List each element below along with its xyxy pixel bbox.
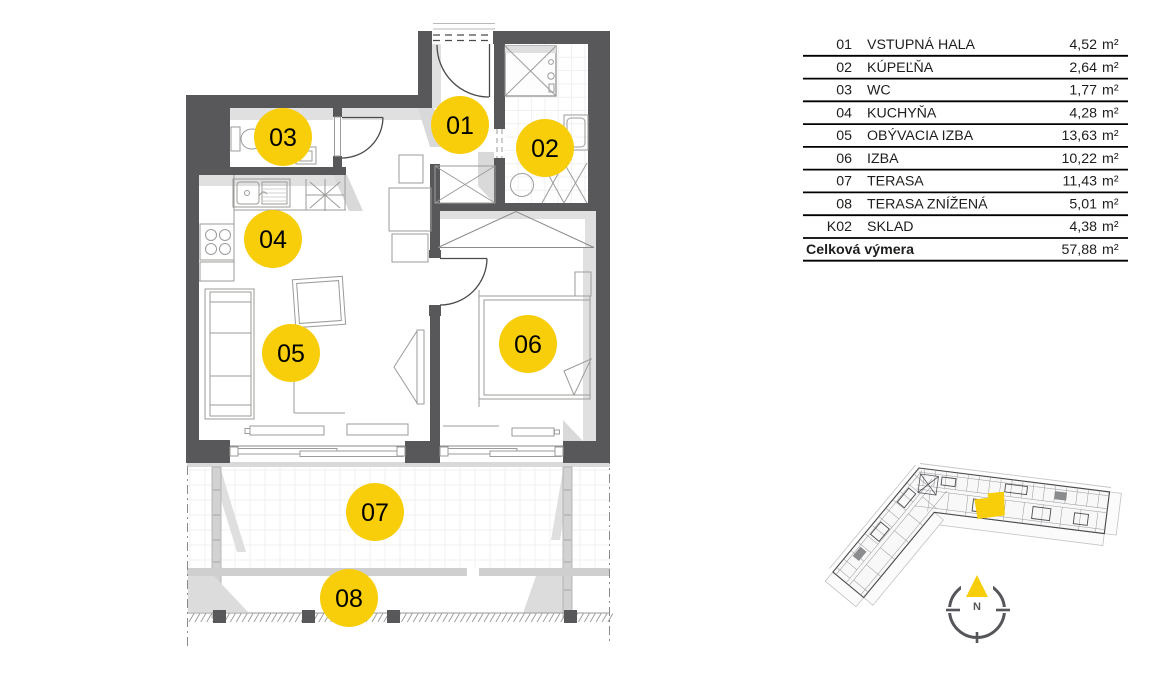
- svg-text:02: 02: [836, 60, 852, 76]
- svg-text:08: 08: [836, 196, 852, 212]
- svg-text:TERASA: TERASA: [867, 174, 924, 190]
- svg-text:03: 03: [836, 83, 852, 99]
- svg-text:m²: m²: [1102, 196, 1119, 212]
- svg-text:Celková výmera: Celková výmera: [806, 242, 914, 258]
- svg-text:OBÝVACIA IZBA: OBÝVACIA IZBA: [867, 127, 974, 144]
- svg-text:11,43: 11,43: [1063, 174, 1098, 190]
- svg-text:m²: m²: [1102, 174, 1119, 190]
- svg-text:4,28: 4,28: [1069, 105, 1097, 121]
- svg-text:02: 02: [531, 135, 559, 163]
- svg-text:1,77: 1,77: [1069, 83, 1097, 99]
- svg-text:4,38: 4,38: [1069, 219, 1097, 235]
- svg-text:01: 01: [836, 37, 852, 53]
- svg-text:m²: m²: [1102, 37, 1119, 53]
- svg-text:5,01: 5,01: [1069, 196, 1097, 212]
- svg-text:05: 05: [277, 340, 305, 368]
- svg-text:N: N: [973, 601, 981, 613]
- svg-text:TERASA ZNÍŽENÁ: TERASA ZNÍŽENÁ: [867, 195, 988, 212]
- svg-text:08: 08: [335, 585, 363, 613]
- svg-text:IZBA: IZBA: [867, 151, 899, 167]
- svg-text:m²: m²: [1102, 83, 1119, 99]
- svg-text:57,88: 57,88: [1061, 242, 1097, 258]
- svg-text:04: 04: [836, 105, 852, 121]
- svg-text:4,52: 4,52: [1069, 37, 1097, 53]
- svg-text:VSTUPNÁ HALA: VSTUPNÁ HALA: [867, 36, 976, 53]
- svg-text:m²: m²: [1102, 128, 1119, 144]
- svg-text:06: 06: [514, 331, 542, 359]
- svg-text:WC: WC: [867, 83, 891, 99]
- svg-text:03: 03: [269, 124, 297, 152]
- svg-text:KÚPEĽŇA: KÚPEĽŇA: [867, 59, 934, 76]
- svg-text:SKLAD: SKLAD: [867, 219, 914, 235]
- svg-text:13,63: 13,63: [1061, 128, 1097, 144]
- svg-text:06: 06: [836, 151, 852, 167]
- svg-text:m²: m²: [1102, 60, 1119, 76]
- svg-text:07: 07: [836, 174, 852, 190]
- svg-text:07: 07: [361, 499, 389, 527]
- svg-text:m²: m²: [1102, 105, 1119, 121]
- svg-text:K02: K02: [827, 219, 852, 235]
- svg-text:KUCHYŇA: KUCHYŇA: [867, 104, 937, 121]
- svg-text:m²: m²: [1102, 219, 1119, 235]
- svg-text:m²: m²: [1102, 151, 1119, 167]
- svg-text:2,64: 2,64: [1069, 60, 1097, 76]
- svg-text:05: 05: [836, 128, 852, 144]
- svg-text:01: 01: [446, 112, 474, 140]
- svg-text:04: 04: [259, 226, 287, 254]
- svg-text:m²: m²: [1102, 242, 1119, 258]
- svg-text:10,22: 10,22: [1061, 151, 1097, 167]
